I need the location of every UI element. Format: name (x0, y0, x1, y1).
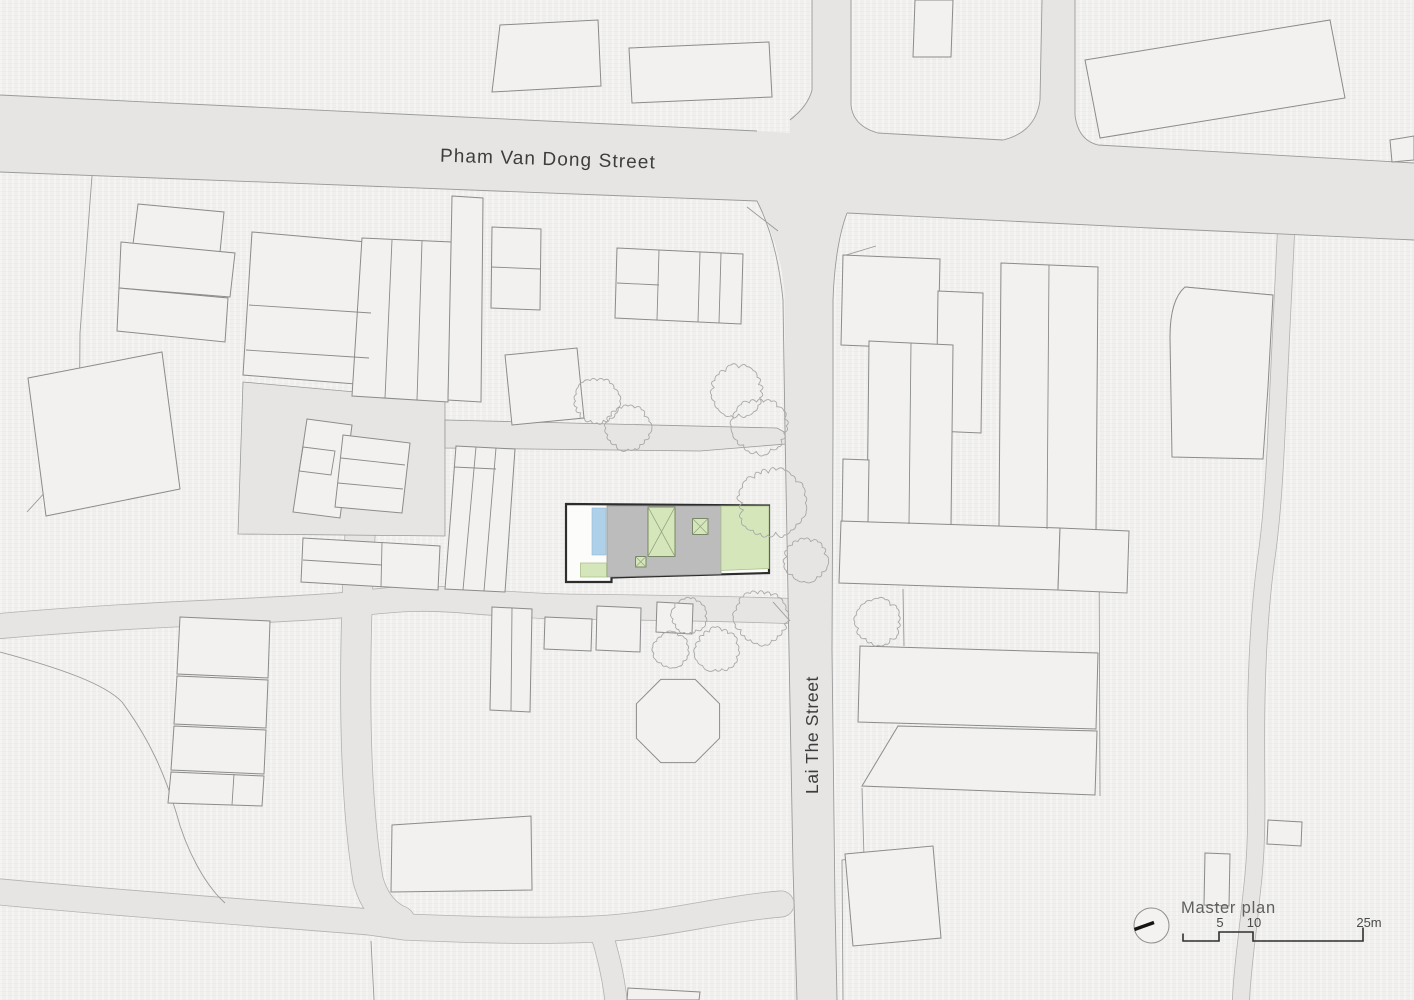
building-footprint (28, 352, 180, 516)
building-footprint (174, 676, 268, 728)
building-footprint (615, 248, 743, 324)
building-footprint (636, 679, 719, 762)
scale-tick-25m: 25m (1356, 915, 1381, 930)
scale-tick-10: 10 (1247, 915, 1261, 930)
building-footprint (171, 726, 266, 774)
scale-bar (1183, 928, 1363, 942)
building-footprint (627, 988, 700, 1000)
legend-title: Master plan (1181, 899, 1276, 917)
building-footprint (177, 617, 270, 678)
building-footprint (448, 196, 483, 402)
parcel-boundary-line (851, 0, 878, 133)
building-footprint (1267, 820, 1302, 846)
building-footprint (858, 646, 1098, 729)
north-arrow-icon (1134, 908, 1169, 943)
streets (0, 0, 1414, 1000)
building-footprint (862, 726, 1097, 795)
garden-southwest (581, 563, 607, 577)
parcel-boundary-line (371, 941, 374, 1000)
building-footprint (544, 617, 592, 651)
tree-icon (694, 627, 740, 672)
building-footprint (335, 435, 410, 513)
building-footprint (1085, 20, 1345, 138)
master-plan-canvas: Pham Van Dong Street Lai The Street Mast… (0, 0, 1414, 1000)
label-lai-the: Lai The Street (802, 676, 822, 794)
building-footprint (352, 238, 452, 402)
building-footprint (1390, 136, 1414, 162)
garden-east (721, 506, 769, 571)
project-site (566, 504, 769, 582)
building-footprint (913, 0, 953, 57)
building-footprint (117, 288, 228, 342)
alley-to-street (445, 420, 786, 451)
building-footprint (1170, 287, 1273, 459)
building-footprint (845, 846, 941, 946)
skylight-small-east (693, 519, 709, 535)
parcel-boundary-line (903, 589, 904, 646)
tree-icon (652, 631, 689, 668)
street-lai-the (785, 295, 837, 1000)
building-footprint (505, 348, 584, 425)
building-footprint (391, 816, 532, 892)
building-footprint (841, 255, 940, 349)
parcel-boundary-line (843, 246, 876, 256)
building-footprint (1058, 528, 1129, 593)
legend: Master plan 5 10 25m (1134, 899, 1382, 943)
skylight-small-west (636, 557, 647, 568)
pool (592, 508, 606, 555)
building-footprint (492, 20, 601, 92)
tree-icon (854, 597, 901, 646)
building-footprint (596, 606, 641, 652)
skylight-large (648, 507, 675, 557)
building-footprint (839, 521, 1060, 590)
building-footprint (842, 459, 869, 523)
building-footprint (629, 42, 772, 103)
building-footprint (168, 772, 264, 806)
scale-tick-5: 5 (1216, 915, 1223, 930)
